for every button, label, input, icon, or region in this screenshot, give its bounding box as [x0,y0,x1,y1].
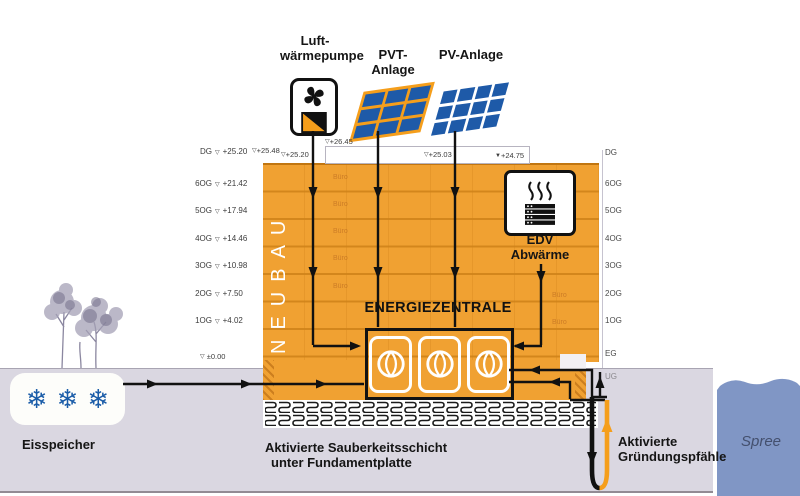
pvt-label: PVT-Anlage [357,47,429,78]
building-name-vertical: NEUBAU [268,172,291,354]
ice-storage-label: Eisspeicher [22,437,95,452]
floor-mark: 3OG▽+10.98 [190,261,247,270]
piles-label: Aktivierte Gründungspfähle [618,434,726,465]
pvt-panel-icon [349,82,435,143]
river-label: Spree [741,433,781,450]
room-label: Büro [333,283,348,290]
floor-mark: 5OG▽+17.94 [190,206,247,215]
eg-notch [560,354,586,369]
floor-mark: 6OG▽+21.42 [190,179,247,188]
snowflake-icon: ❄ [57,386,79,412]
fan-icon [297,81,331,112]
floor-mark: 1OG▽+4.02 [190,316,243,325]
right-floor-label: UG [605,372,617,381]
right-floor-label: 3OG [605,261,622,270]
floor-mark: DG▽+25.20 [190,147,247,156]
room-label: Büro [333,255,348,262]
level-marker-icon: ▽ [200,354,205,360]
level-marker-icon: ▽ [215,291,220,298]
level-marker-icon: ▽ [215,149,220,156]
room-label: Büro [333,228,348,235]
energy-center-box [365,328,514,400]
clean-layer-coils [263,400,598,428]
pump-unit-icon [467,336,510,393]
snowflake-icon: ❄ [87,386,109,412]
level-marker-icon: ▽ [215,208,220,215]
heat-exchange-icon [300,112,328,133]
basement-wall-hatch-left [263,360,274,401]
room-label: Büro [552,319,567,326]
right-floor-label: 2OG [605,289,622,298]
edv-label: EDV Abwärme [505,232,575,263]
roof-mark: ▼+24.75 [495,151,524,160]
roof-mark: ▽+26.45 [325,137,353,146]
floor-mark: 2OG▽+7.50 [190,289,243,298]
roof-mark: ▽+25.03 [424,150,452,159]
background-outline [602,150,603,368]
level-marker-icon: ▽ [215,181,220,188]
right-floor-label: DG [605,148,617,157]
heat-pump-icon [290,78,338,136]
roof-mark: ▽+25.48 [252,146,280,155]
heat-pump-label: Luft- wärmepumpe [280,33,350,64]
level-marker-icon: ▽ [215,318,220,325]
ground-zero-mark: ▽ ±0.00 [200,352,225,361]
floor-mark: 4OG▽+14.46 [190,234,247,243]
right-floor-label: 5OG [605,206,622,215]
ice-storage-box: ❄ ❄ ❄ [10,373,125,425]
room-label: Büro [333,174,348,181]
pump-unit-icon [418,336,461,393]
right-floor-label: EG [605,349,617,358]
energy-concept-diagram: Spree NEUBAU Büro Büro Büro Büro Büro Bü… [0,0,800,496]
ground-bottom-edge [0,491,713,493]
pv-panel-icon [431,82,509,135]
roof-mark: ▽+25.20 [281,150,309,159]
room-label: Büro [333,201,348,208]
clean-layer-label: Aktivierte Sauberkeitsschicht unter Fund… [265,440,447,471]
right-floor-label: 4OG [605,234,622,243]
trees-illustration [26,272,156,369]
edv-server-icon [504,170,576,236]
level-marker-icon: ▽ [215,263,220,270]
right-floor-label: 6OG [605,179,622,188]
energy-center-title: ENERGIEZENTRALE [358,300,518,316]
pump-unit-icon [369,336,412,393]
pv-label: PV-Anlage [437,47,505,62]
right-floor-label: 1OG [605,316,622,325]
room-label: Büro [552,292,567,299]
snowflake-icon: ❄ [26,386,48,412]
level-marker-icon: ▽ [215,236,220,243]
